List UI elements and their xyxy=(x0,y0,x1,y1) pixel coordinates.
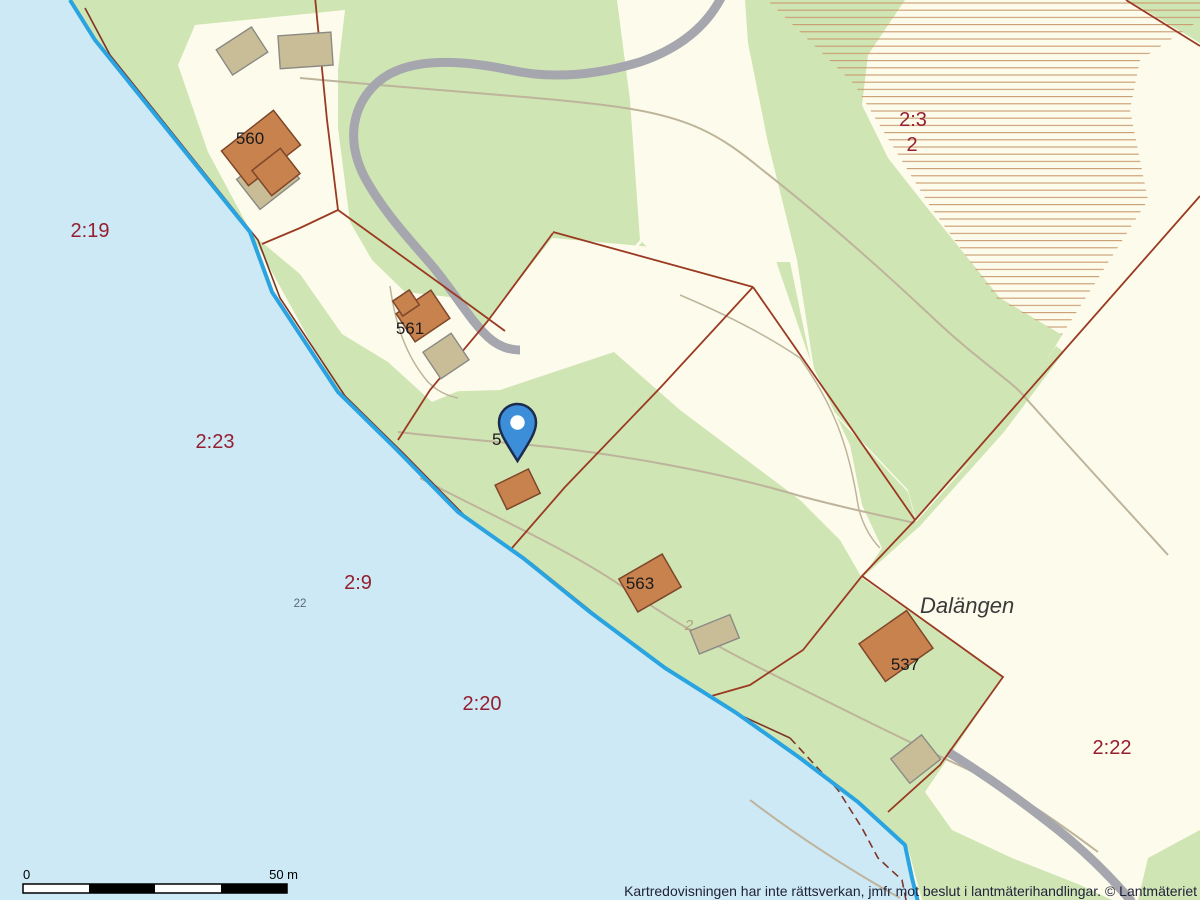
outbuilding xyxy=(278,32,333,69)
scale-bar-segment xyxy=(89,884,155,893)
building-label-561: 561 xyxy=(396,319,424,338)
parcel-label-2-23: 2:23 xyxy=(196,431,235,453)
place-name-dalangen: Dalängen xyxy=(920,593,1014,618)
map-viewport[interactable]: 560 561 5 563 537 2:19 2:23 2:9 2:20 2:3… xyxy=(0,0,1200,900)
map-canvas[interactable]: 560 561 5 563 537 2:19 2:23 2:9 2:20 2:3… xyxy=(0,0,1200,900)
building-label-560: 560 xyxy=(236,129,264,148)
building-label-537: 537 xyxy=(891,655,919,674)
parcel-label-2-19: 2:19 xyxy=(71,220,110,242)
scale-distance-label: 50 m xyxy=(269,867,298,882)
attribution-text: Kartredovisningen har inte rättsverkan, … xyxy=(624,883,1197,899)
scale-bar-segment xyxy=(23,884,89,893)
depth-annotation: 22 xyxy=(294,598,307,610)
scale-bar-segment xyxy=(221,884,287,893)
scale-bar-segment xyxy=(155,884,221,893)
parcel-label-2-9: 2:9 xyxy=(344,572,372,594)
parcel-label-2-3-unit: 2 xyxy=(906,134,917,156)
building-label-563: 563 xyxy=(626,574,654,593)
location-pin-hole xyxy=(510,415,524,429)
path-annotation: 2 xyxy=(684,617,694,634)
scale-zero-label: 0 xyxy=(23,867,30,882)
parcel-label-2-20: 2:20 xyxy=(463,693,502,715)
parcel-label-2-22: 2:22 xyxy=(1093,737,1132,759)
parcel-label-2-3: 2:3 xyxy=(899,109,927,131)
